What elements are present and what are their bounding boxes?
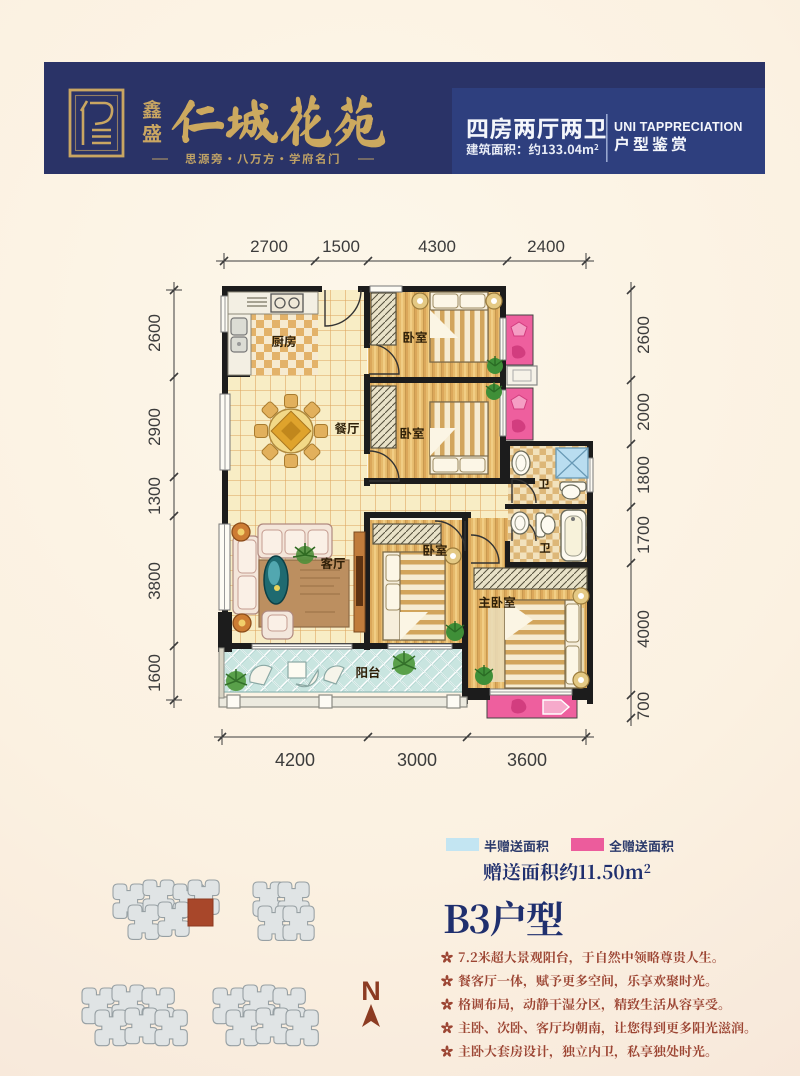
- svg-text:卧室: 卧室: [422, 540, 447, 559]
- svg-text:厨房: 厨房: [271, 331, 296, 350]
- svg-text:主卧室: 主卧室: [478, 592, 516, 611]
- svg-text:3800: 3800: [145, 562, 164, 600]
- svg-text:客厅: 客厅: [320, 553, 345, 572]
- svg-text:格调布局，动静干湿分区，精致生活从容享受。: 格调布局，动静干湿分区，精致生活从容享受。: [458, 994, 731, 1013]
- svg-text:仁城花苑: 仁城花苑: [170, 92, 386, 148]
- svg-text:盛: 盛: [142, 118, 162, 147]
- svg-text:2600: 2600: [634, 316, 653, 354]
- svg-text:思源旁·八万方·学府名门: 思源旁·八万方·学府名门: [185, 151, 341, 167]
- svg-text:主卧、次卧、客厅均朝南，让您得到更多阳光滋润。: 主卧、次卧、客厅均朝南，让您得到更多阳光滋润。: [458, 1018, 757, 1037]
- svg-text:餐厅: 餐厅: [334, 418, 359, 437]
- svg-text:阳台: 阳台: [355, 662, 380, 681]
- svg-text:户型鉴赏: 户型鉴赏: [614, 131, 690, 155]
- svg-text:7.2米超大景观阳台，于自然中领略尊贵人生。: 7.2米超大景观阳台，于自然中领略尊贵人生。: [458, 947, 725, 966]
- svg-text:卫: 卫: [539, 540, 551, 556]
- svg-text:N: N: [361, 976, 381, 1006]
- svg-text:半赠送面积: 半赠送面积: [484, 836, 549, 855]
- svg-text:餐客厅一体，赋予更多空间，乐享欢聚时光。: 餐客厅一体，赋予更多空间，乐享欢聚时光。: [458, 971, 718, 990]
- svg-text:主卧大套房设计，独立内卫，私享独处时光。: 主卧大套房设计，独立内卫，私享独处时光。: [458, 1041, 718, 1060]
- svg-text:1800: 1800: [634, 456, 653, 494]
- svg-text:4000: 4000: [634, 610, 653, 648]
- svg-text:B3户型: B3户型: [443, 889, 563, 944]
- svg-text:卧室: 卧室: [402, 327, 427, 346]
- svg-text:700: 700: [634, 692, 653, 720]
- svg-text:1700: 1700: [634, 516, 653, 554]
- svg-text:4200: 4200: [275, 750, 315, 770]
- svg-text:建筑面积：约133.04m2: 建筑面积：约133.04m2: [466, 139, 599, 158]
- svg-text:2000: 2000: [634, 393, 653, 431]
- svg-text:卫: 卫: [538, 476, 550, 492]
- svg-text:3600: 3600: [507, 750, 547, 770]
- svg-text:2700: 2700: [250, 237, 288, 256]
- svg-text:赠送面积约11.50m2: 赠送面积约11.50m2: [483, 858, 651, 885]
- svg-text:2900: 2900: [145, 408, 164, 446]
- svg-text:4300: 4300: [418, 237, 456, 256]
- svg-text:2600: 2600: [145, 314, 164, 352]
- svg-text:1300: 1300: [145, 477, 164, 515]
- svg-text:3000: 3000: [397, 750, 437, 770]
- svg-text:1500: 1500: [322, 237, 360, 256]
- svg-text:2400: 2400: [527, 237, 565, 256]
- svg-text:全赠送面积: 全赠送面积: [609, 836, 674, 855]
- svg-text:卧室: 卧室: [399, 423, 424, 442]
- svg-text:1600: 1600: [145, 654, 164, 692]
